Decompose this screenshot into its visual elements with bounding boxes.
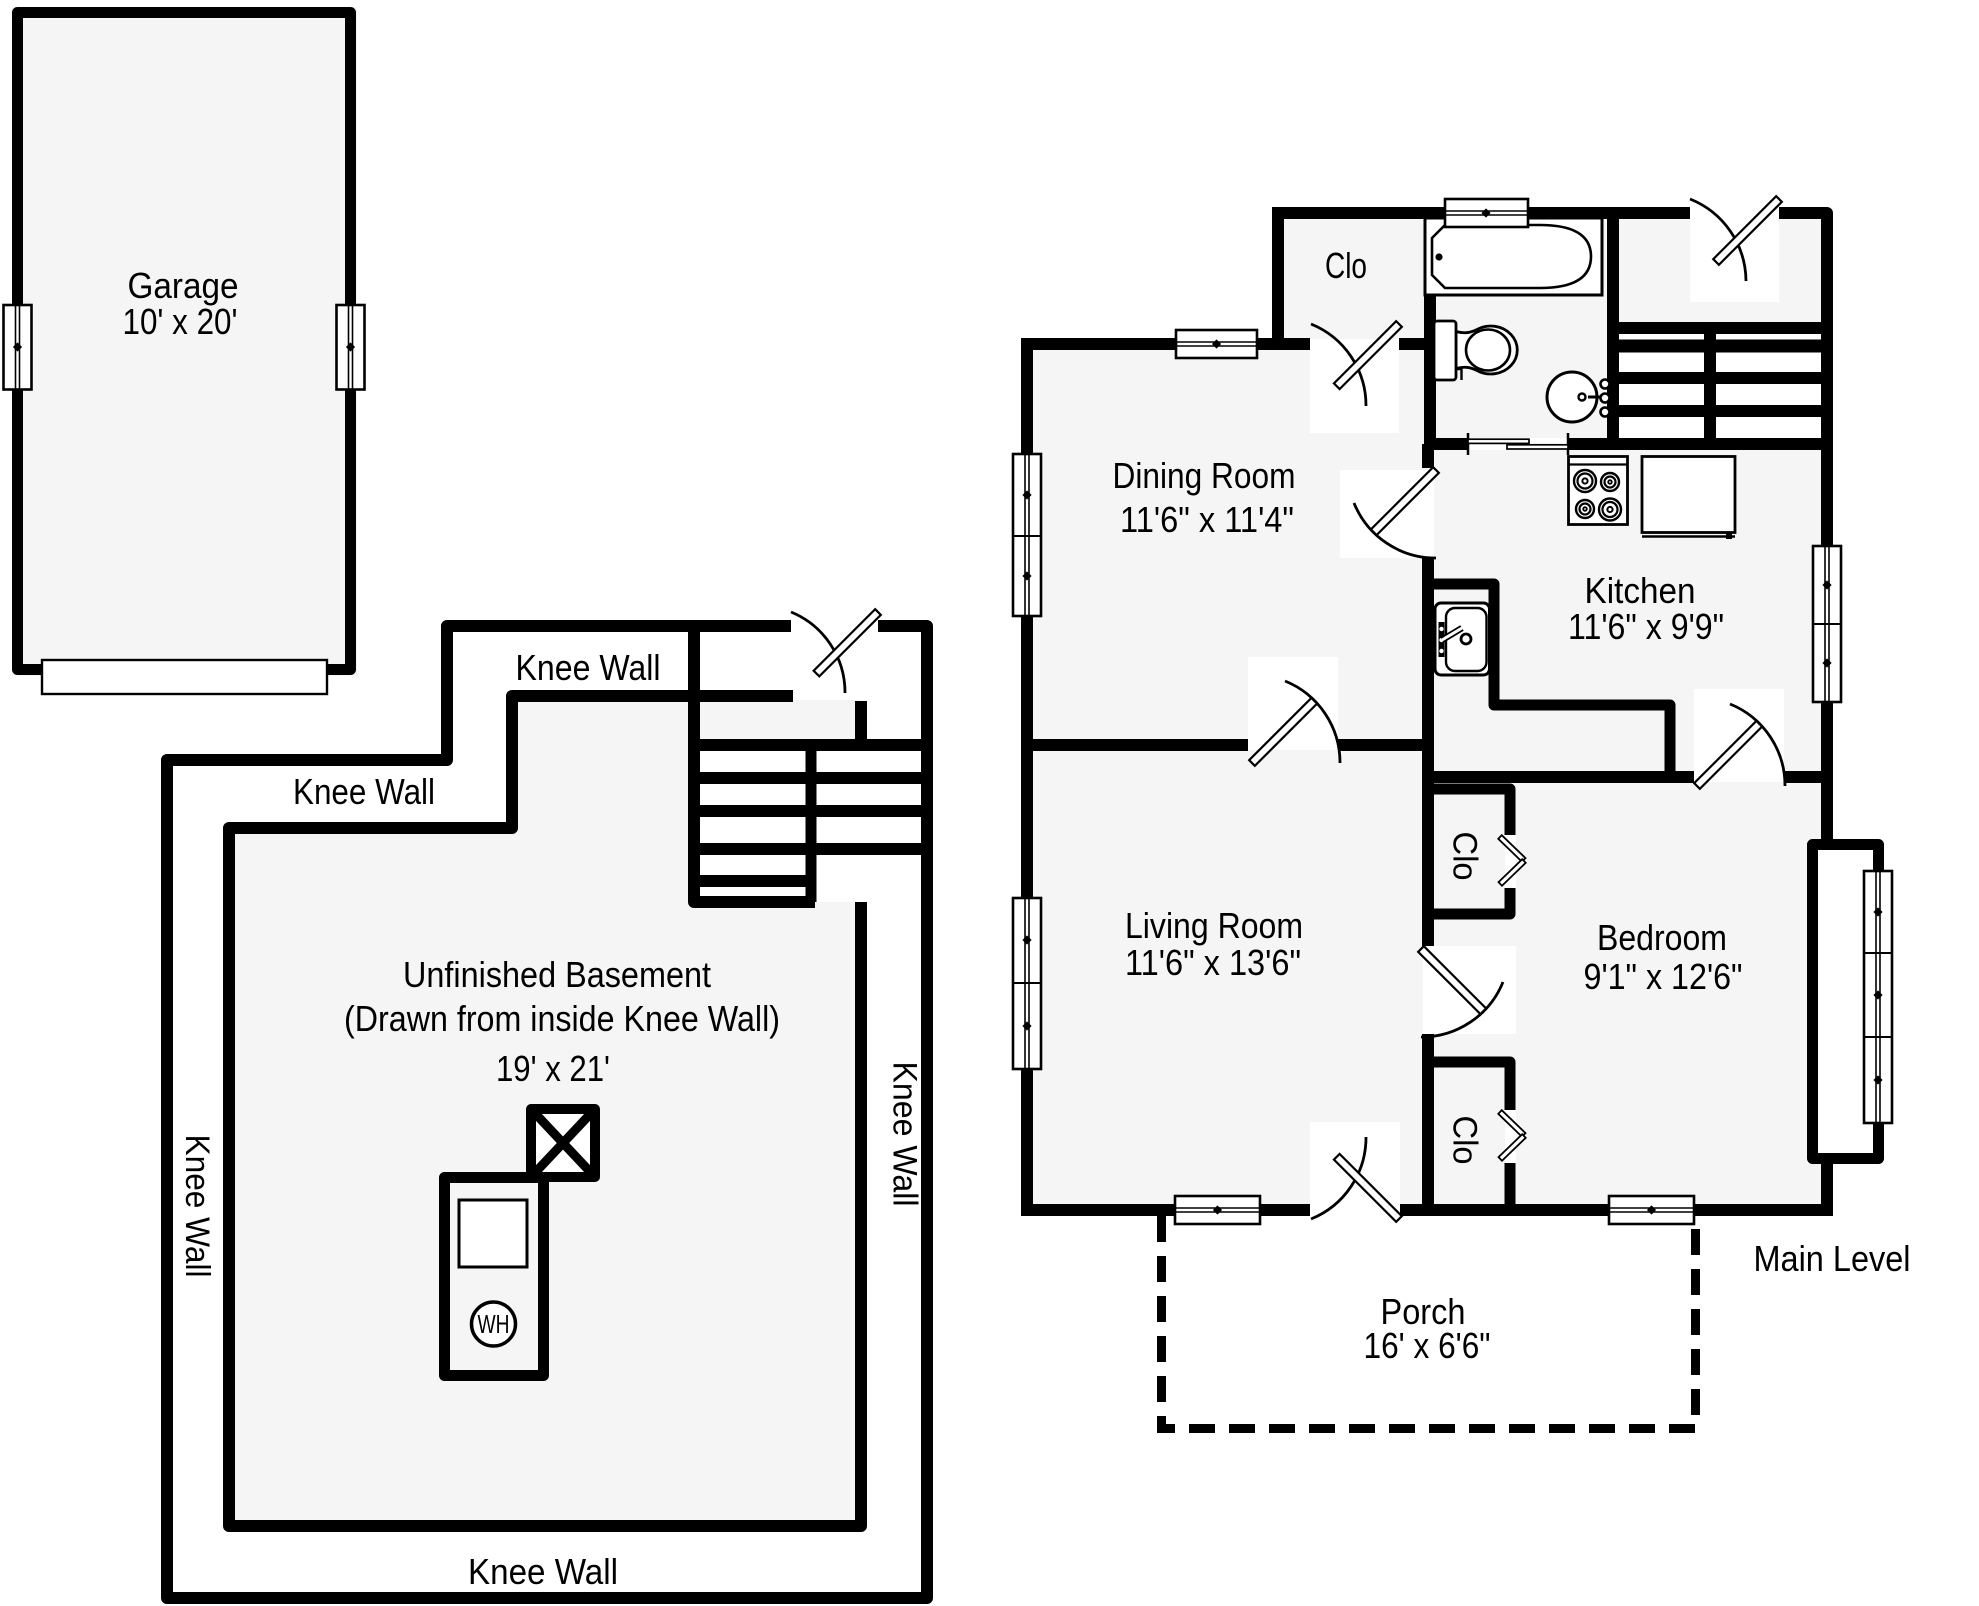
svg-text:Knee Wall: Knee Wall xyxy=(468,1551,618,1592)
svg-text:Knee Wall: Knee Wall xyxy=(516,647,661,688)
svg-text:10' x 20': 10' x 20' xyxy=(123,301,238,342)
svg-text:Dining Room: Dining Room xyxy=(1113,455,1296,496)
svg-text:Kitchen: Kitchen xyxy=(1585,570,1696,611)
svg-text:Knee Wall: Knee Wall xyxy=(886,1062,924,1207)
svg-text:Living Room: Living Room xyxy=(1125,905,1303,946)
svg-text:11'6" x 13'6": 11'6" x 13'6" xyxy=(1125,942,1301,983)
svg-text:Knee Wall: Knee Wall xyxy=(178,1135,216,1278)
svg-text:Bedroom: Bedroom xyxy=(1597,917,1727,958)
svg-text:(Drawn from inside Knee Wall): (Drawn from inside Knee Wall) xyxy=(344,998,780,1039)
svg-text:WH: WH xyxy=(478,1309,510,1339)
svg-text:11'6" x 11'4": 11'6" x 11'4" xyxy=(1120,499,1294,540)
svg-text:Unfinished Basement: Unfinished Basement xyxy=(403,954,711,995)
svg-text:16' x 6'6": 16' x 6'6" xyxy=(1364,1325,1491,1366)
svg-text:11'6" x 9'9": 11'6" x 9'9" xyxy=(1568,606,1724,647)
svg-text:Clo: Clo xyxy=(1446,832,1484,881)
svg-text:Clo: Clo xyxy=(1446,1116,1484,1165)
svg-text:Clo: Clo xyxy=(1325,245,1367,286)
svg-text:Knee Wall: Knee Wall xyxy=(293,771,435,812)
svg-text:Main Level: Main Level xyxy=(1754,1238,1911,1279)
svg-text:19' x 21': 19' x 21' xyxy=(496,1048,610,1089)
svg-text:9'1" x 12'6": 9'1" x 12'6" xyxy=(1584,956,1743,997)
svg-text:Garage: Garage xyxy=(128,265,239,306)
